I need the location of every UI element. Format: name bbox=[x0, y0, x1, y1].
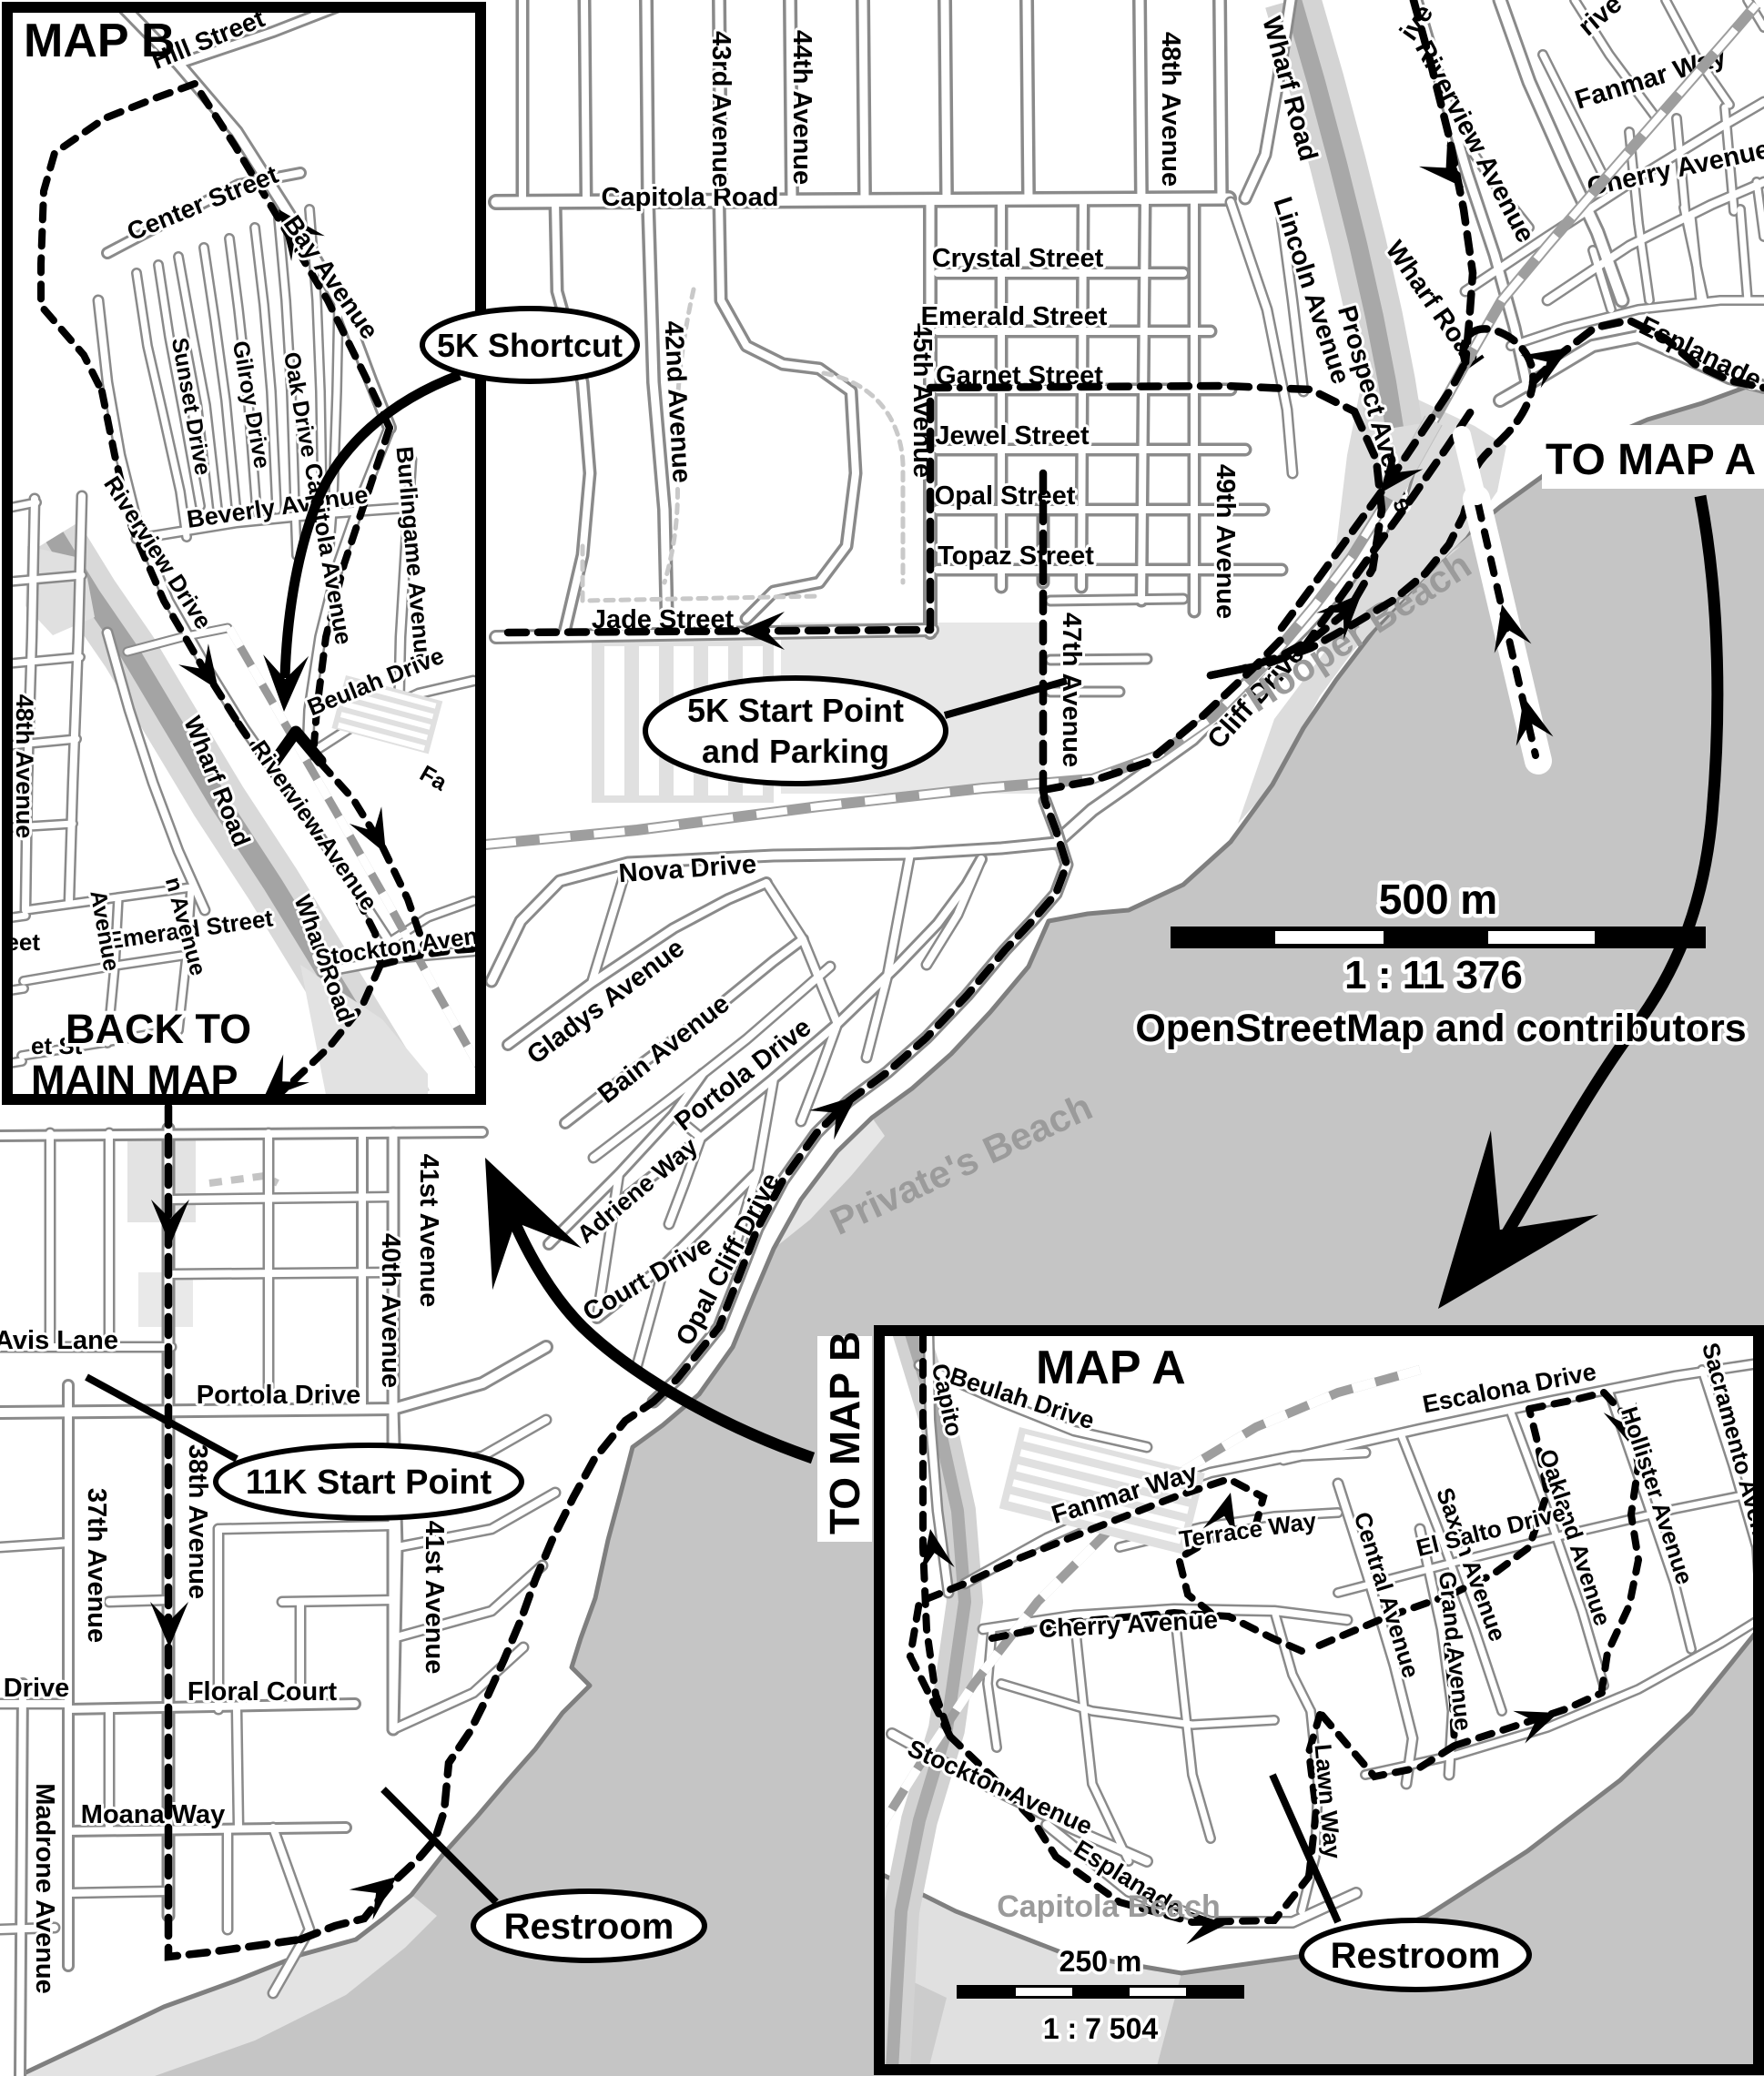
svg-text:Restroom: Restroom bbox=[1331, 1936, 1501, 1976]
svg-text:Madrone Avenue: Madrone Avenue bbox=[30, 1783, 59, 1994]
svg-text:48th Avenue: 48th Avenue bbox=[1156, 32, 1185, 187]
svg-text:Opal Street: Opal Street bbox=[935, 481, 1076, 511]
svg-text:Capitola Road: Capitola Road bbox=[602, 183, 779, 212]
svg-text:TO MAP B: TO MAP B bbox=[821, 1332, 868, 1534]
svg-text:37th Avenue: 37th Avenue bbox=[82, 1488, 111, 1643]
svg-text:1 : 11 376: 1 : 11 376 bbox=[1344, 953, 1523, 997]
svg-text:44th Avenue: 44th Avenue bbox=[787, 30, 816, 185]
svg-text:Topaz Street: Topaz Street bbox=[938, 542, 1094, 571]
svg-text:43rd Avenue: 43rd Avenue bbox=[706, 31, 735, 187]
svg-text:and Parking: and Parking bbox=[702, 733, 889, 770]
svg-text:500 m: 500 m bbox=[1379, 876, 1497, 923]
svg-text:Avis Lane: Avis Lane bbox=[0, 1326, 118, 1355]
svg-text:Drive: Drive bbox=[4, 1674, 70, 1703]
svg-text:Crystal Street: Crystal Street bbox=[932, 244, 1104, 273]
svg-text:Restroom: Restroom bbox=[504, 1907, 674, 1947]
svg-text:40th Avenue: 40th Avenue bbox=[376, 1233, 405, 1388]
svg-text:MAP A: MAP A bbox=[1036, 1342, 1186, 1394]
svg-text:49th Avenue: 49th Avenue bbox=[1211, 464, 1240, 619]
svg-text:250 m: 250 m bbox=[1059, 1945, 1142, 1978]
svg-text:TO MAP A: TO MAP A bbox=[1546, 436, 1756, 484]
svg-text:41st Avenue: 41st Avenue bbox=[420, 1521, 449, 1675]
svg-text:Capitola Beach: Capitola Beach bbox=[997, 1889, 1221, 1924]
svg-text:38th Avenue: 38th Avenue bbox=[183, 1444, 212, 1599]
svg-text:5K Start Point: 5K Start Point bbox=[687, 692, 904, 729]
svg-text:Portola Drive: Portola Drive bbox=[197, 1381, 361, 1410]
svg-text:11K Start Point: 11K Start Point bbox=[246, 1463, 492, 1502]
svg-text:41st Avenue: 41st Avenue bbox=[414, 1154, 443, 1308]
svg-text:48th Avenue: 48th Avenue bbox=[11, 694, 38, 839]
svg-text:Jewel Street: Jewel Street bbox=[935, 421, 1090, 451]
svg-text:BACK TO: BACK TO bbox=[66, 1006, 251, 1052]
svg-text:47th Avenue: 47th Avenue bbox=[1057, 613, 1086, 767]
svg-text:Floral Court: Floral Court bbox=[188, 1677, 338, 1706]
svg-text:Emerald Street: Emerald Street bbox=[921, 302, 1108, 331]
svg-text:5K Shortcut: 5K Shortcut bbox=[437, 327, 623, 364]
svg-text:OpenStreetMap and contributors: OpenStreetMap and contributors bbox=[1135, 1007, 1746, 1050]
svg-text:Moana Way: Moana Way bbox=[81, 1800, 225, 1829]
svg-text:1 : 7 504: 1 : 7 504 bbox=[1043, 2012, 1159, 2045]
svg-text:MAP B: MAP B bbox=[24, 15, 176, 67]
